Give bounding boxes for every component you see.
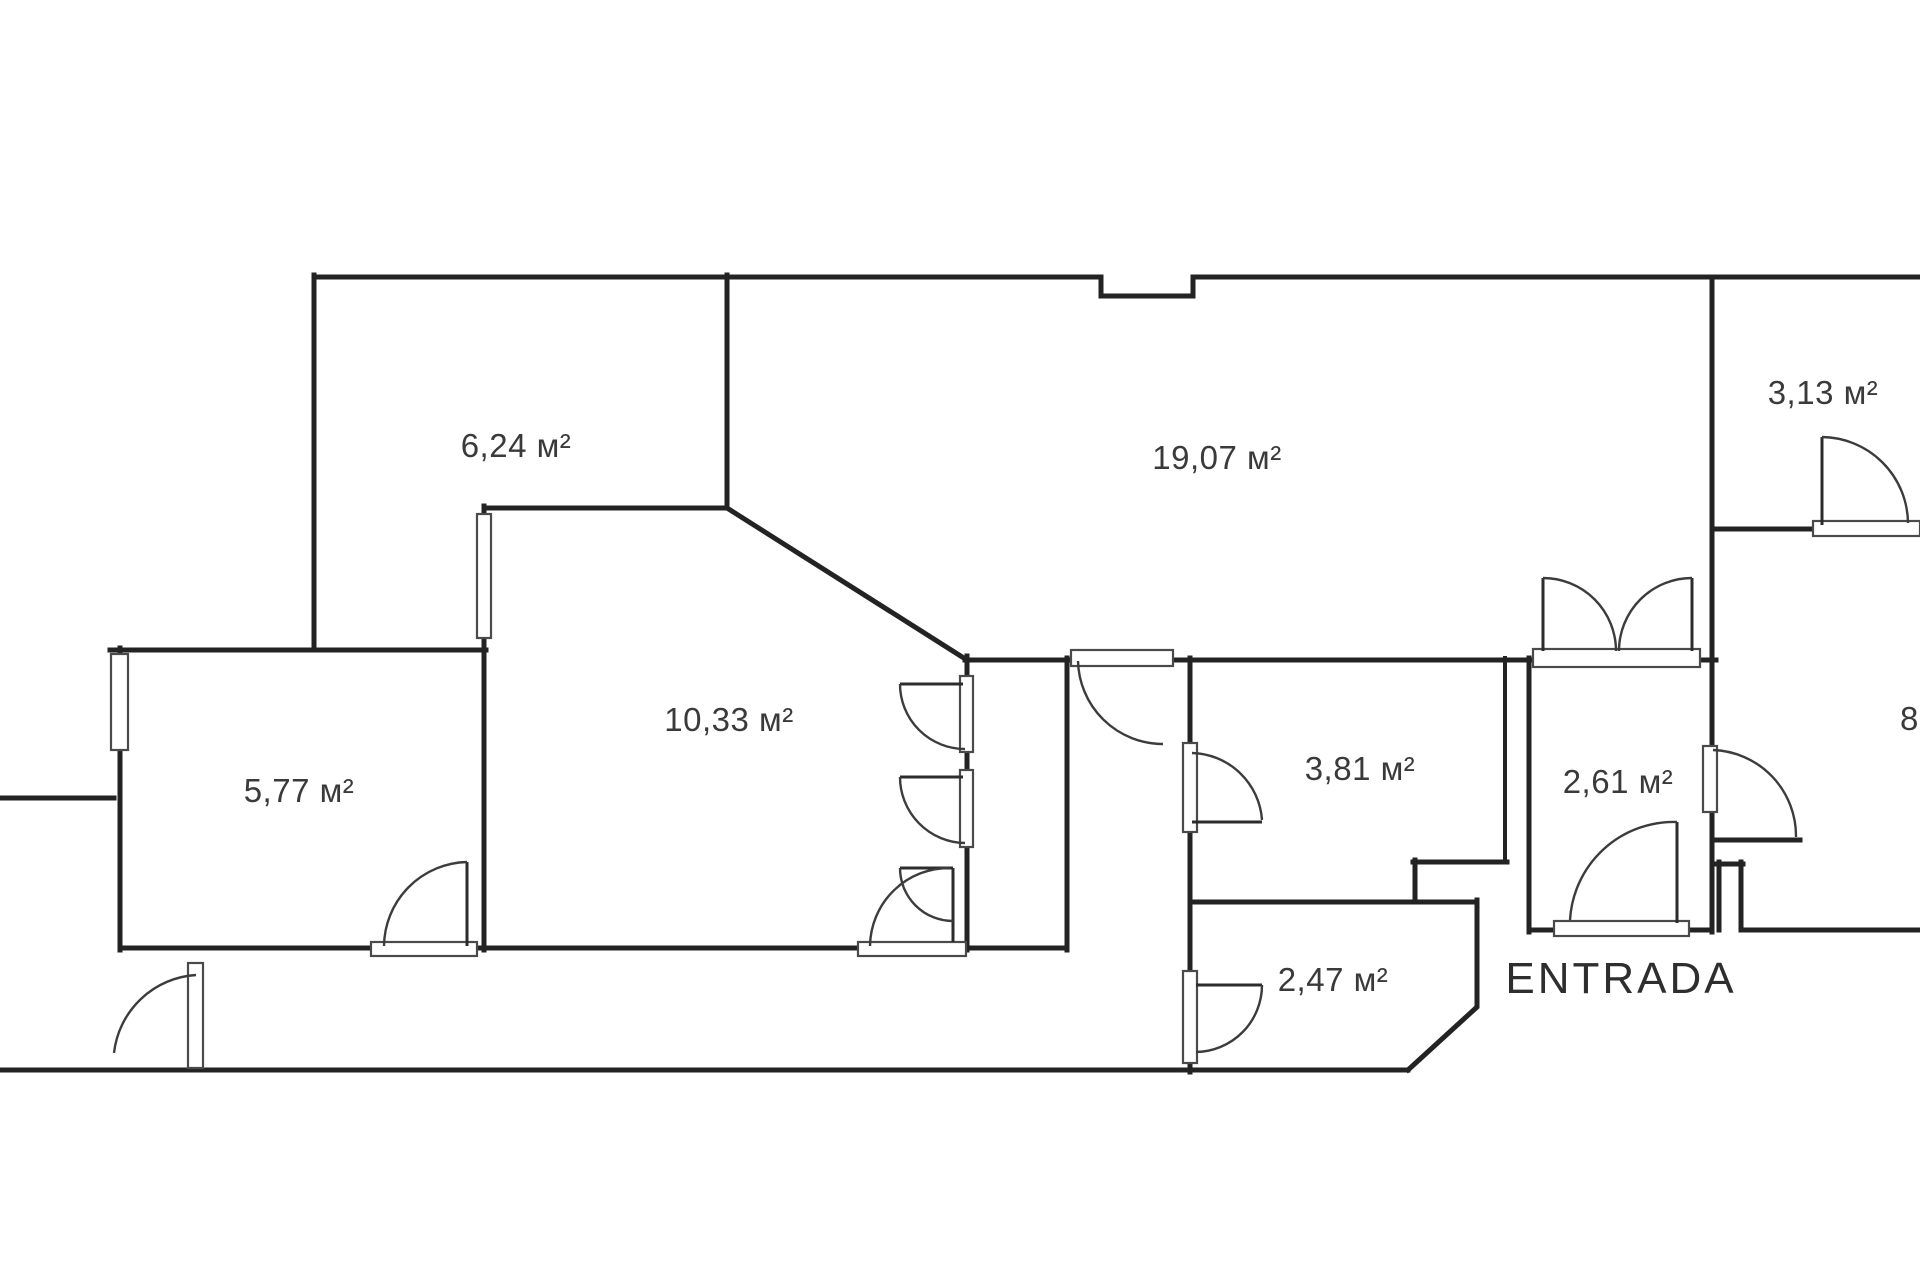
door-arc-1033-b bbox=[900, 777, 965, 843]
room-label-10-33: 10,33 м² bbox=[664, 701, 793, 738]
double-door-sill-261 bbox=[1533, 649, 1700, 667]
door-arc-577 bbox=[384, 862, 467, 946]
door-sill-313 bbox=[1813, 521, 1920, 536]
room-label-3-13: 3,13 м² bbox=[1768, 374, 1879, 411]
door-arc-313 bbox=[1822, 437, 1908, 523]
room-label-right-clipped: 8, bbox=[1900, 700, 1920, 737]
door-arc-1033-c bbox=[900, 868, 953, 921]
door-sill-corridor-381 bbox=[1183, 743, 1197, 832]
entrance-label: ENTRADA bbox=[1505, 954, 1736, 1003]
door-arc-corridor-left bbox=[114, 975, 196, 1053]
door-sill-577 bbox=[371, 942, 477, 956]
door-arc-entrance bbox=[1570, 822, 1677, 920]
entrance-door-sill bbox=[1554, 921, 1689, 936]
door-arc-261-8xx bbox=[1713, 750, 1796, 837]
door-arc-corridor-247 bbox=[1196, 985, 1262, 1052]
room-label-2-47: 2,47 м² bbox=[1278, 961, 1389, 998]
door-arc-1907-corridor bbox=[1078, 661, 1163, 744]
room-label-19-07: 19,07 м² bbox=[1152, 439, 1281, 476]
room-label-2-61: 2,61 м² bbox=[1563, 763, 1674, 800]
room-label-5-77: 5,77 м² bbox=[244, 772, 355, 809]
door-sill-261-8xx bbox=[1703, 746, 1717, 812]
door-sill-1033-bottom bbox=[858, 942, 966, 956]
floor-plan-canvas: 6,24 м² 19,07 м² 3,13 м² 10,33 м² 5,77 м… bbox=[0, 0, 1920, 1280]
wall-entrance-bottom bbox=[1529, 862, 1920, 930]
double-door-arc-left bbox=[1543, 578, 1616, 651]
door-arc-1033-bottom bbox=[870, 868, 950, 946]
room-label-6-24: 6,24 м² bbox=[461, 427, 572, 464]
opening-sill-624-1033 bbox=[477, 514, 491, 638]
double-door-arc-right bbox=[1619, 578, 1692, 651]
wall-diagonal bbox=[727, 508, 967, 660]
door-arc-1033-a bbox=[900, 684, 965, 749]
door-sill-corridor-247 bbox=[1183, 971, 1197, 1063]
door-sill-1033-right-2 bbox=[960, 770, 973, 847]
window-sill-577 bbox=[111, 654, 128, 750]
door-sill-corridor-left bbox=[188, 963, 203, 1068]
door-arc-corridor-381 bbox=[1192, 753, 1262, 820]
room-label-3-81: 3,81 м² bbox=[1305, 750, 1416, 787]
wall-top-exterior bbox=[314, 277, 1920, 296]
door-sill-1033-right-1 bbox=[960, 676, 973, 752]
door-sill-1907-corridor bbox=[1071, 650, 1173, 666]
